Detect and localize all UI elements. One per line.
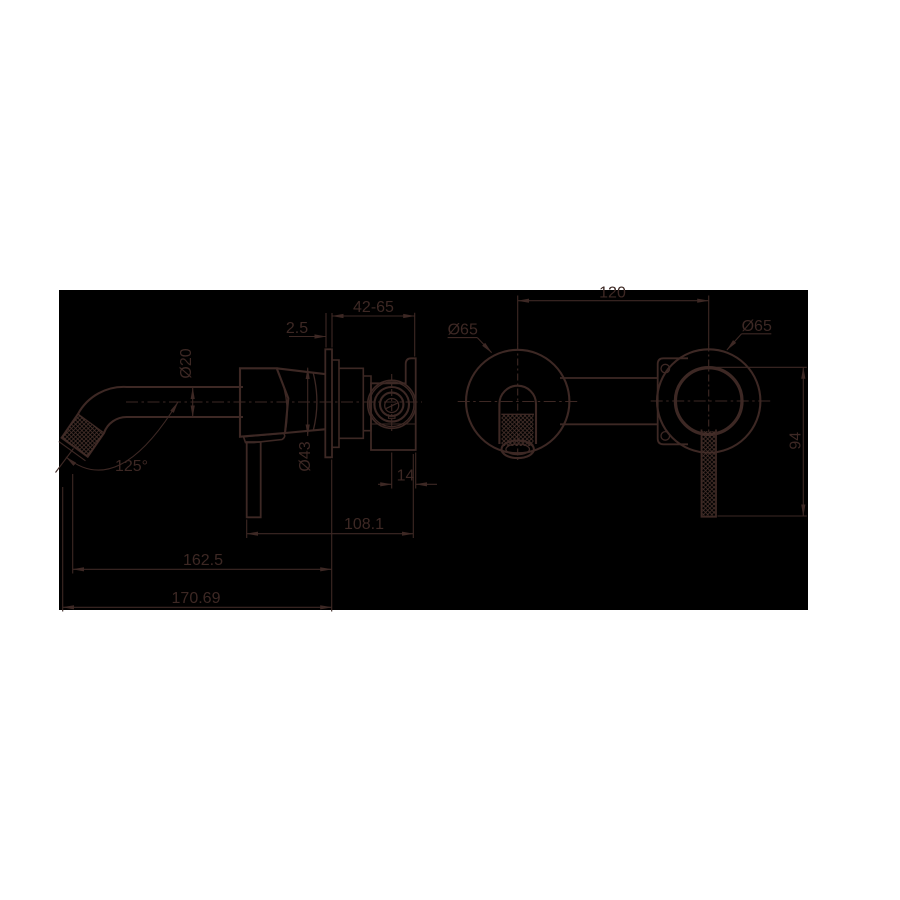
technical-drawing: 42-65 2.5 Ø20 125° Ø43 14 108.1: [0, 0, 900, 900]
dim-label-projection-total: 170.69: [172, 590, 221, 607]
page: 42-65 2.5 Ø20 125° Ø43 14 108.1: [0, 0, 900, 900]
dim-label-handle-offset: 14: [397, 468, 415, 485]
dim-label-spout-diameter: Ø20: [178, 348, 195, 378]
dim-label-spout-angle: 125°: [115, 458, 148, 475]
dim-label-wall-depth: 42-65: [353, 299, 394, 316]
dim-label-spout-reach: 108.1: [344, 516, 384, 533]
dim-label-handle-drop: 94: [787, 432, 804, 450]
front-handle-knurl: [703, 431, 716, 516]
dim-label-centre-distance: 120: [599, 285, 626, 302]
dim-label-plate-thickness: 2.5: [286, 320, 308, 337]
dim-label-mixer-plate-diameter: Ø65: [742, 318, 772, 335]
dim-label-body-diameter: Ø43: [297, 441, 314, 471]
dim-label-projection-mid: 162.5: [183, 552, 223, 569]
dim-label-spout-plate-diameter: Ø65: [448, 321, 478, 338]
